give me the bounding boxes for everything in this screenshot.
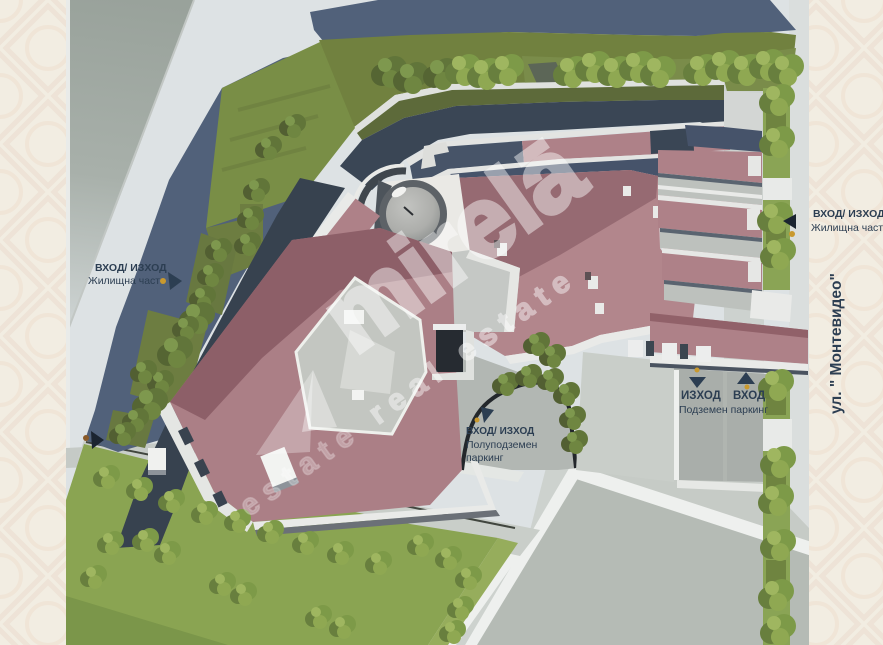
svg-text:Жилищна част: Жилищна част [88, 275, 160, 287]
svg-text:ВХОД/ ИЗХОД: ВХОД/ ИЗХОД [466, 426, 534, 437]
svg-text:паркинг: паркинг [466, 452, 504, 464]
svg-text:ул. " Монтевидео": ул. " Монтевидео" [828, 273, 845, 414]
svg-text:ВХОД: ВХОД [733, 390, 765, 402]
svg-text:ВХОД/ ИЗХОД: ВХОД/ ИЗХОД [813, 208, 883, 220]
svg-text:Подземен паркинг: Подземен паркинг [679, 404, 768, 416]
svg-text:Полуподземен: Полуподземен [466, 439, 538, 451]
svg-text:ВХОД/ ИЗХОД: ВХОД/ ИЗХОД [95, 262, 167, 274]
svg-text:ИЗХОД: ИЗХОД [681, 390, 721, 402]
svg-text:Жилищна част: Жилищна част [811, 222, 883, 234]
